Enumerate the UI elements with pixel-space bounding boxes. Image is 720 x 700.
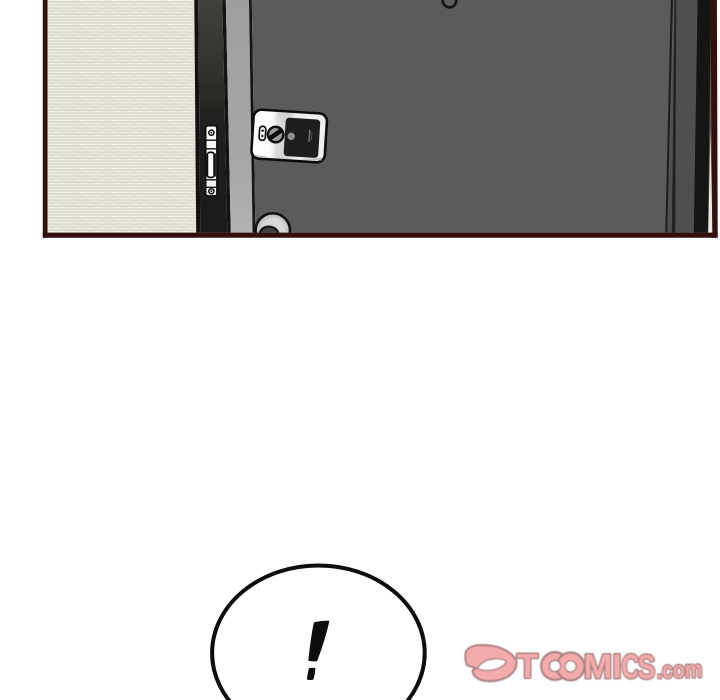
svg-text:T: T — [517, 648, 538, 686]
svg-text:.com: .com — [656, 656, 702, 684]
svg-text:S: S — [638, 647, 656, 686]
svg-text:MI: MI — [584, 648, 622, 686]
